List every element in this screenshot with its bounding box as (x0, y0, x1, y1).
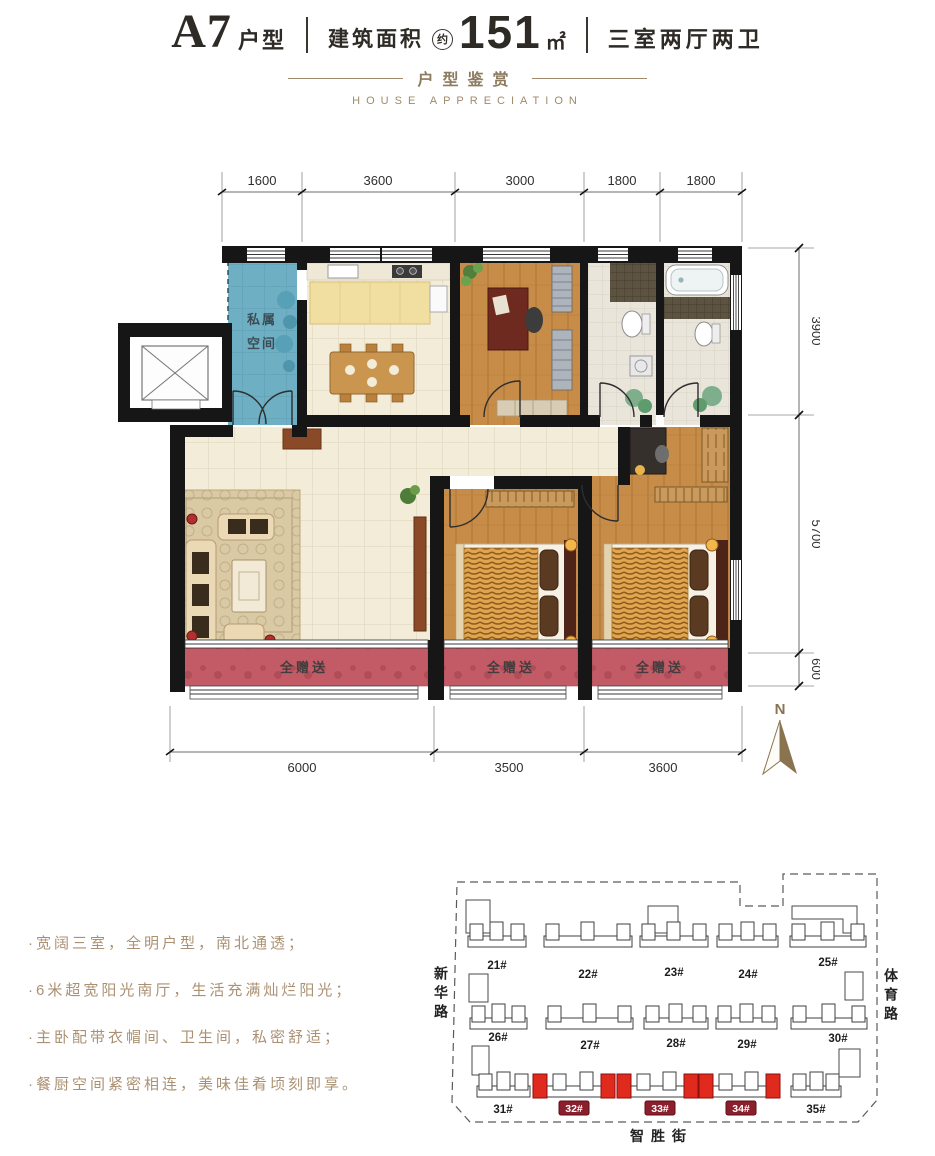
dim-label: 5700 (809, 520, 820, 549)
toilet (622, 311, 642, 337)
fridge (430, 286, 447, 312)
dimensions-top: 1600 3600 3000 1800 1800 (218, 172, 746, 242)
building-label: 30# (828, 1033, 848, 1045)
window (444, 640, 578, 648)
desk-chair (525, 307, 543, 333)
feature-item: ·6米超宽阳光南厅，生活充满灿烂阳光； (28, 979, 438, 1000)
balcony-sill (450, 686, 566, 699)
elevator (118, 323, 232, 422)
headboard (716, 540, 728, 650)
building-26: 26# (470, 1004, 527, 1044)
feature-item: ·宽阔三室，全明户型，南北通透； (28, 932, 438, 953)
page: A7 户型 建筑面积 约 151 ㎡ 三室两厅两卫 户型鉴赏 HOUSE APP… (0, 0, 935, 1156)
dim-label: 1800 (687, 173, 716, 188)
building-25: 25# (790, 922, 866, 969)
private-space-label-line1: 私属 (247, 312, 277, 327)
north-label: N (775, 701, 786, 718)
window (731, 560, 741, 620)
washer (630, 356, 652, 376)
approx-badge: 约 (432, 29, 453, 50)
title-divider (306, 17, 308, 53)
building-31: 31# (477, 1072, 530, 1116)
dim-label: 3500 (495, 760, 524, 775)
area-value: 151 (459, 9, 542, 55)
subtitle-en: HOUSE APPRECIATION (0, 95, 935, 107)
window (185, 640, 428, 648)
area-unit: ㎡ (546, 26, 566, 55)
window (592, 640, 728, 648)
dim-label: 3600 (364, 173, 393, 188)
balcony-bonus-label: 全赠送 (279, 660, 328, 675)
dim-label: 3900 (809, 317, 820, 346)
building-label: 32# (565, 1103, 583, 1115)
building-label: 23# (664, 967, 684, 979)
toilet (695, 322, 713, 346)
dim-label: 1600 (248, 173, 277, 188)
building-30: 30# (791, 1004, 867, 1045)
tv-cabinet (414, 517, 426, 631)
highlighted-unit (533, 1074, 547, 1098)
window (483, 248, 550, 261)
highlighted-unit (699, 1074, 713, 1098)
dim-label: 1800 (608, 173, 637, 188)
balcony-sill (598, 686, 722, 699)
window (678, 248, 712, 261)
feature-item: ·主卧配带衣帽间、卫生间，私密舒适； (28, 1026, 438, 1047)
balcony-sill (190, 686, 418, 699)
dining-table (330, 352, 414, 394)
building-24: 24# (717, 922, 778, 981)
window (330, 248, 380, 261)
window (382, 248, 432, 261)
building-28: 28# (644, 1004, 708, 1050)
building-label: 25# (818, 957, 838, 969)
balcony-bonus-label: 全赠送 (635, 660, 684, 675)
window (731, 275, 741, 330)
site-boundary (783, 874, 877, 906)
building-label: 22# (578, 969, 598, 981)
building-23: 23# (640, 922, 708, 979)
subtitle-rule-right (532, 78, 647, 79)
page-title: A7 户型 建筑面积 约 151 ㎡ 三室两厅两卫 (0, 8, 935, 56)
dimensions-bottom: 6000 3500 3600 (166, 706, 746, 775)
hallway-floor (185, 427, 630, 476)
highlighted-unit (684, 1074, 698, 1098)
building-32-highlighted: 32# (533, 1072, 615, 1115)
building-label: 26# (488, 1032, 508, 1044)
building-label: 27# (580, 1040, 600, 1052)
dimensions-right: 3900 5700 600 (748, 244, 820, 690)
dim-label: 3600 (649, 760, 678, 775)
subtitle-rule-left (288, 78, 403, 79)
highlighted-unit (766, 1074, 780, 1098)
building-35: 35# (791, 1072, 841, 1116)
sink (328, 265, 358, 278)
building-22: 22# (544, 922, 632, 981)
site-boundary (457, 882, 783, 906)
section-subtitle: 户型鉴赏 HOUSE APPRECIATION (0, 66, 935, 107)
floor-plan: 全赠送 全赠送 全赠送 (100, 160, 820, 800)
window (598, 248, 628, 261)
window (247, 248, 285, 261)
dim-label: 6000 (288, 760, 317, 775)
unit-code: A7 (171, 8, 232, 56)
title-divider (586, 17, 588, 53)
feature-item: ·餐厨空间紧密相连，美味佳肴顷刻即享。 (28, 1073, 438, 1094)
building-27: 27# (546, 1004, 633, 1052)
building-33-highlighted: 33# (617, 1072, 698, 1115)
dim-label: 3000 (506, 173, 535, 188)
unit-type-label: 户型 (238, 23, 286, 55)
area-label: 建筑面积 (328, 23, 424, 53)
highlighted-unit (617, 1074, 631, 1098)
building-label: 29# (737, 1039, 757, 1051)
wardrobe (486, 491, 574, 507)
highlighted-unit (601, 1074, 615, 1098)
subtitle-cn: 户型鉴赏 (417, 66, 517, 90)
building-label: 28# (666, 1038, 686, 1050)
wardrobe (655, 487, 727, 502)
building-29: 29# (716, 1004, 777, 1051)
site-plan: 21# 22# 23# 24# 25# 26# 27# 28# (430, 866, 910, 1156)
rooms-summary: 三室两厅两卫 (608, 22, 764, 54)
private-space-label-line2: 空间 (247, 336, 277, 351)
building-label: 34# (732, 1103, 750, 1115)
road-label-south: 智胜街 (630, 1126, 693, 1146)
road-label-west: 新华路 (431, 966, 451, 1023)
building-label: 33# (651, 1103, 669, 1115)
building-label: 35# (806, 1104, 826, 1116)
feature-list: ·宽阔三室，全明户型，南北通透； ·6米超宽阳光南厅，生活充满灿烂阳光； ·主卧… (28, 932, 438, 1120)
coffee-table (232, 560, 266, 612)
north-arrow: N (763, 701, 797, 774)
dim-label: 600 (809, 658, 820, 680)
building-label: 31# (493, 1104, 513, 1116)
building-label: 24# (738, 969, 758, 981)
building-34-highlighted: 34# (699, 1072, 780, 1115)
walk-in-closet (702, 428, 728, 482)
building-label: 21# (487, 960, 507, 972)
headboard (564, 540, 576, 650)
balcony-bonus-label: 全赠送 (486, 660, 535, 675)
balconies: 全赠送 全赠送 全赠送 (180, 648, 728, 686)
road-label-east: 体育路 (881, 968, 901, 1025)
building-21: 21# (468, 922, 526, 972)
